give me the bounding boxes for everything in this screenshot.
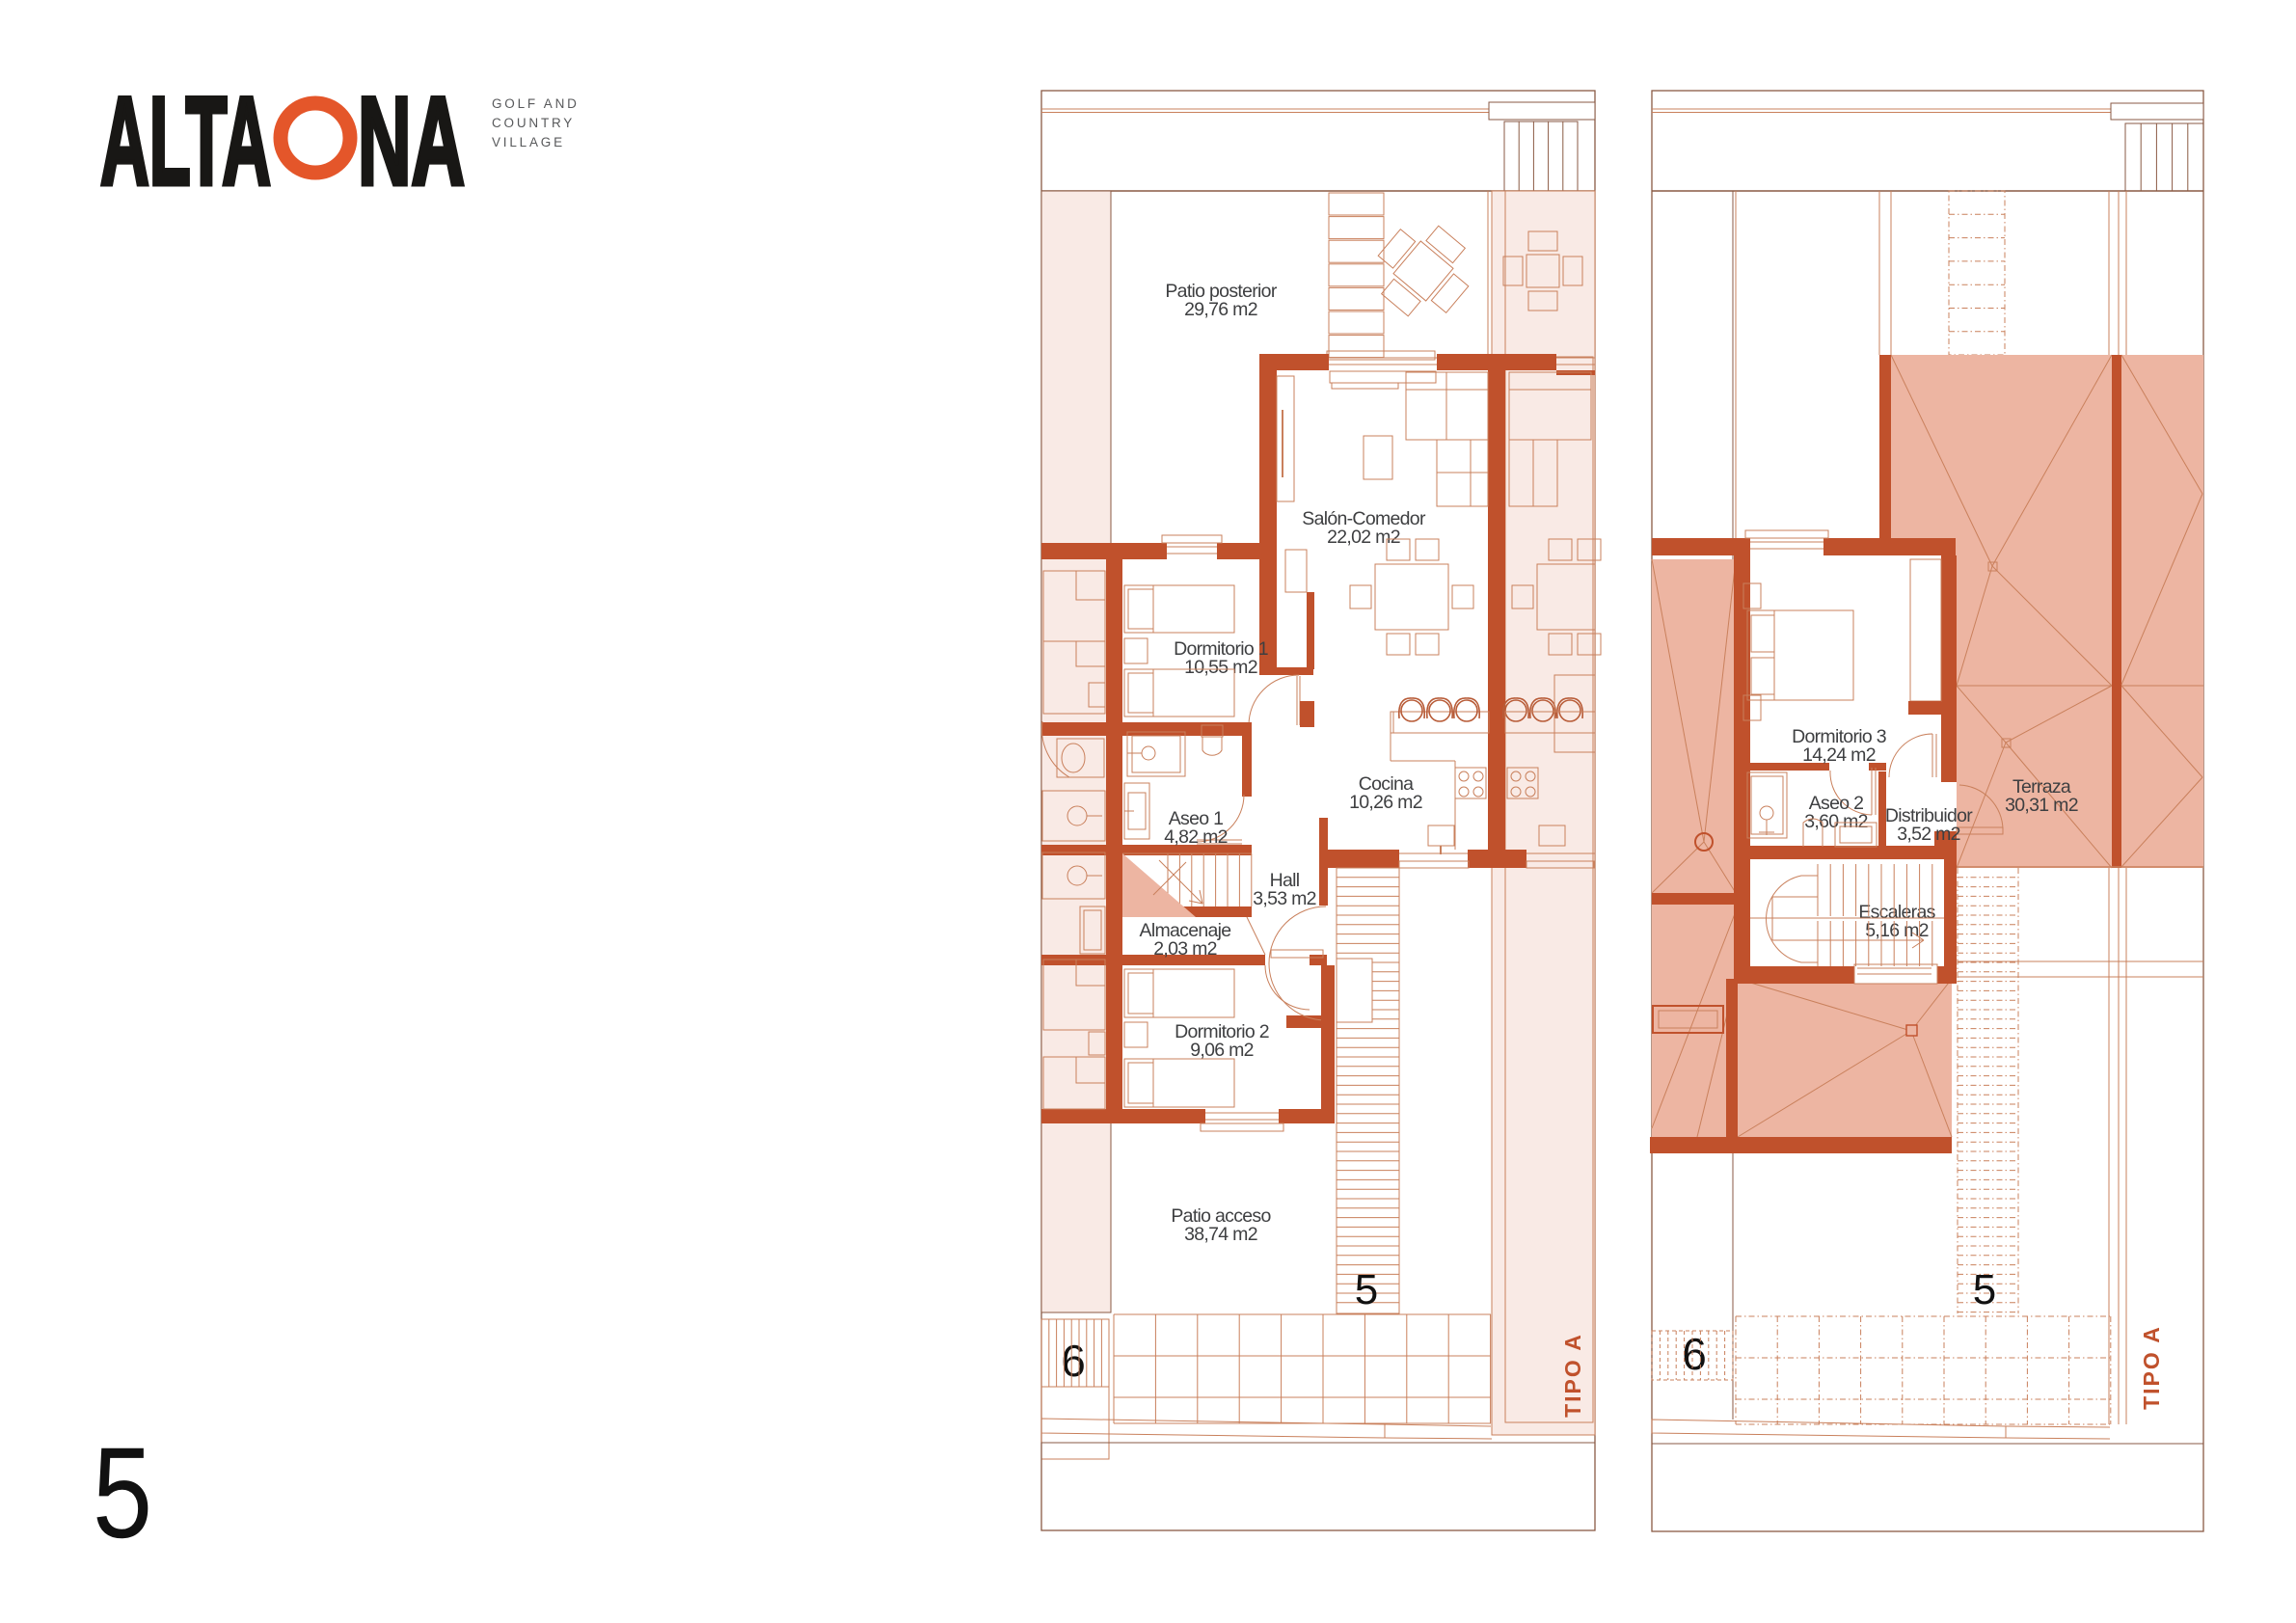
svg-text:5: 5 [1973,1266,1996,1313]
svg-text:COUNTRY: COUNTRY [492,116,575,130]
svg-text:22,02 m2: 22,02 m2 [1327,527,1400,548]
svg-text:6: 6 [1061,1336,1086,1386]
svg-text:30,31 m2: 30,31 m2 [2005,795,2078,816]
svg-text:NA: NA [358,70,465,211]
svg-text:5: 5 [93,1421,152,1565]
svg-text:TIPO A: TIPO A [1560,1333,1585,1418]
svg-text:14,24 m2: 14,24 m2 [1802,744,1876,766]
svg-text:3,52 m2: 3,52 m2 [1897,824,1960,845]
svg-text:10,26 m2: 10,26 m2 [1349,792,1422,813]
svg-text:GOLF AND: GOLF AND [492,96,580,111]
svg-text:TIPO A: TIPO A [2139,1325,2164,1410]
svg-text:9,06 m2: 9,06 m2 [1190,1040,1254,1061]
svg-text:29,76 m2: 29,76 m2 [1184,299,1257,320]
svg-text:ALTA: ALTA [100,70,271,211]
svg-text:5,16 m2: 5,16 m2 [1865,920,1929,941]
svg-text:4,82 m2: 4,82 m2 [1164,826,1228,848]
svg-text:VILLAGE: VILLAGE [492,135,565,149]
svg-text:2,03 m2: 2,03 m2 [1153,938,1217,960]
svg-text:10,55 m2: 10,55 m2 [1184,657,1257,678]
svg-text:6: 6 [1682,1329,1707,1379]
svg-text:3,53 m2: 3,53 m2 [1253,888,1316,909]
svg-text:3,60 m2: 3,60 m2 [1804,811,1868,832]
svg-text:38,74 m2: 38,74 m2 [1184,1224,1257,1245]
svg-text:5: 5 [1355,1266,1378,1313]
